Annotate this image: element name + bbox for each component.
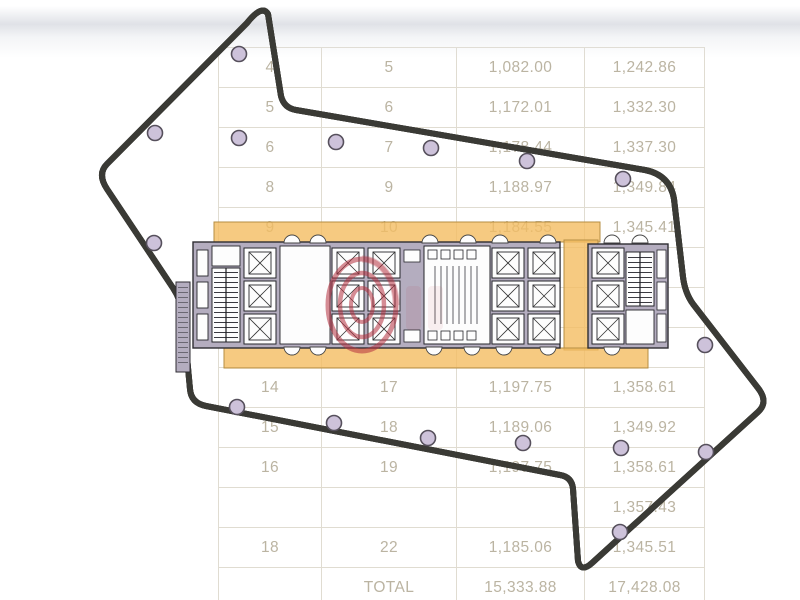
shaft-cell-bottom: [404, 330, 420, 342]
shaft-cell-top: [404, 250, 420, 262]
structural-column: [616, 172, 631, 187]
structural-column: [421, 431, 436, 446]
structural-column: [232, 131, 247, 146]
structural-column: [699, 445, 714, 460]
staircase-right: [626, 252, 654, 344]
structural-column: [698, 338, 713, 353]
staircase-left: [212, 246, 240, 342]
structural-column: [329, 135, 344, 150]
structural-column: [230, 400, 245, 415]
structural-column: [232, 47, 247, 62]
watermark-letter: [406, 286, 421, 330]
scanned-page: 451,082.001,242.86561,172.011,332.30671,…: [0, 0, 800, 600]
service-cells-right: [657, 250, 666, 342]
structural-column: [147, 236, 162, 251]
floor-plan: [0, 0, 800, 600]
structural-column: [520, 154, 535, 169]
structural-column: [327, 416, 342, 431]
structural-column: [148, 126, 163, 141]
elevator-lobby-1: [280, 246, 330, 344]
door-arc: [604, 235, 620, 243]
structural-column: [613, 525, 628, 540]
structural-column: [614, 441, 629, 456]
door-arc: [632, 235, 648, 243]
structural-column: [516, 436, 531, 451]
structural-column: [424, 141, 439, 156]
service-shaft-hatch: [178, 286, 188, 366]
service-cells-left: [197, 250, 208, 340]
watermark-letter: [428, 286, 443, 330]
